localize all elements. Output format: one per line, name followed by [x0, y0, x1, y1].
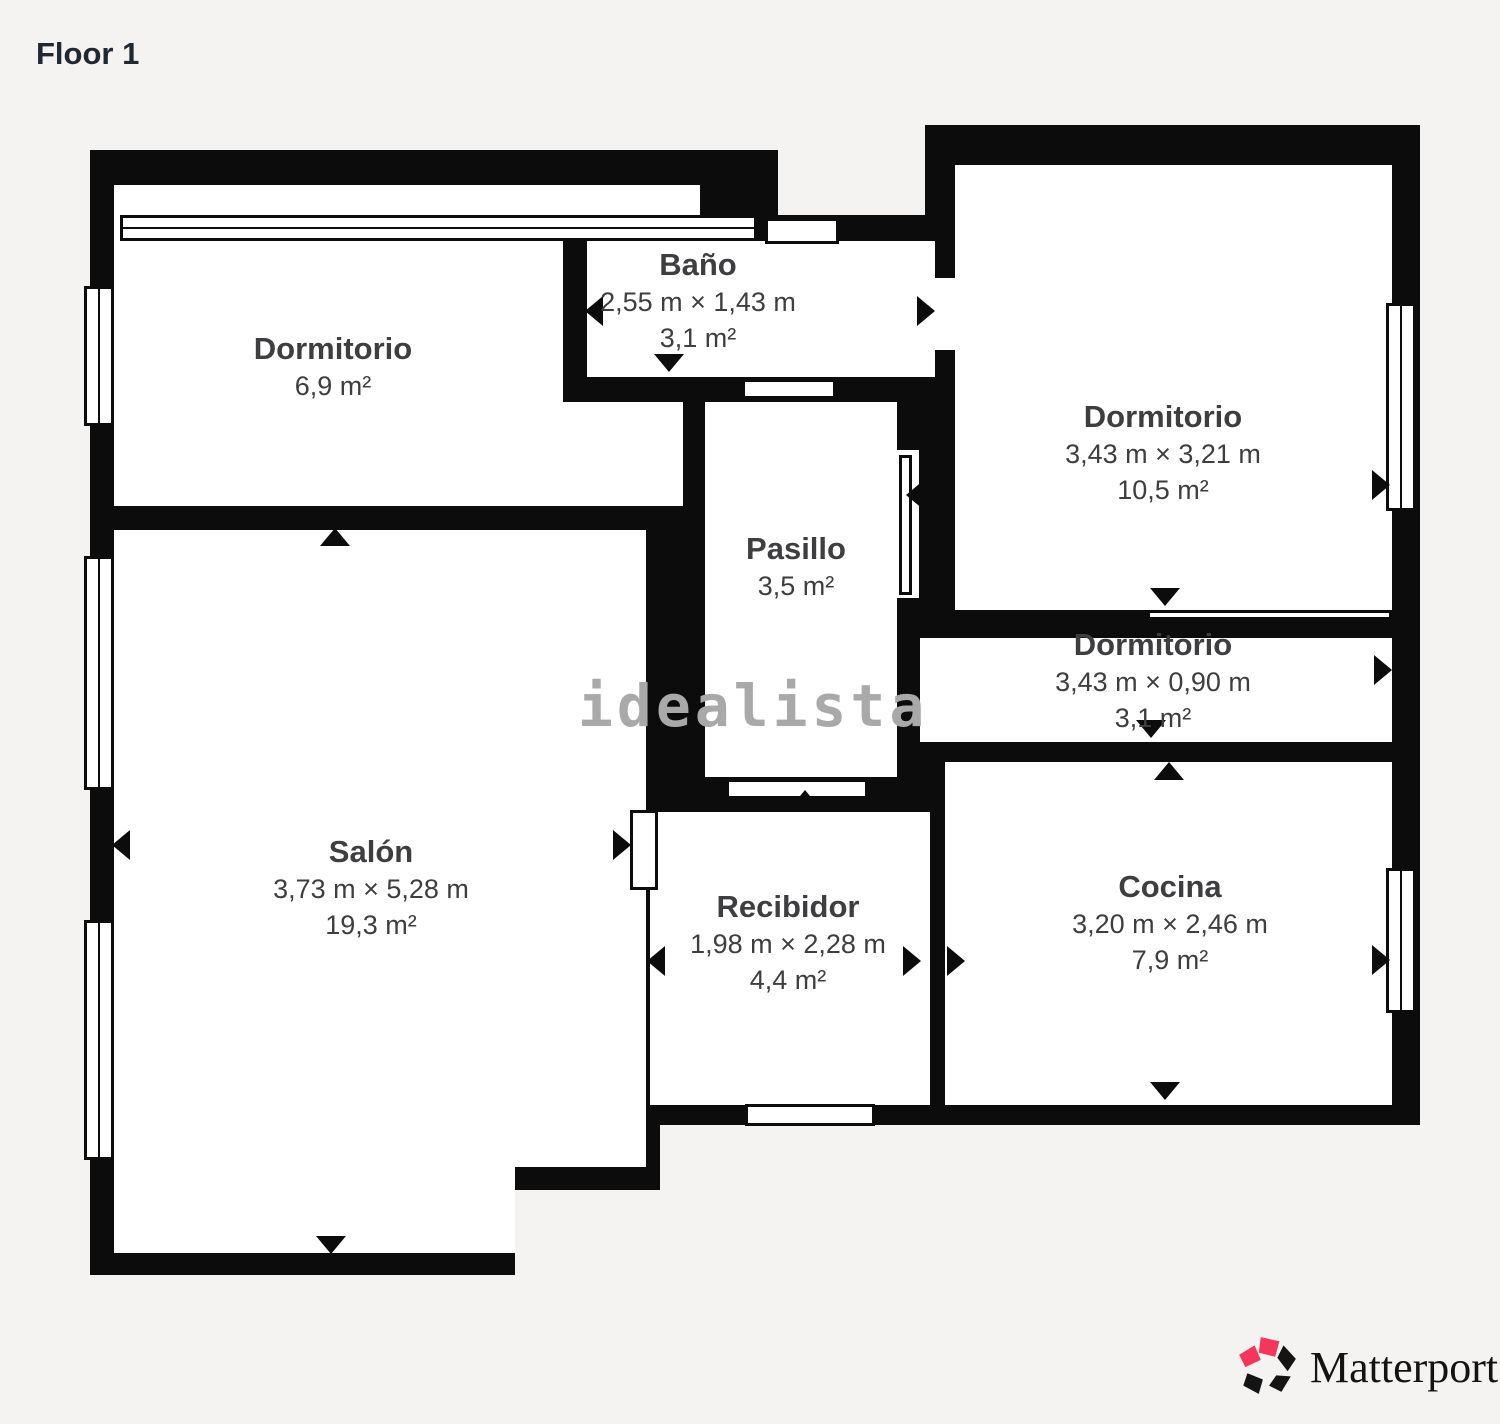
room-label-dormitorio-middle: Dormitorio 3,43 m × 0,90 m 3,1 m²	[1055, 626, 1251, 736]
room-name: Baño	[600, 246, 796, 284]
matterport-pinwheel-icon	[1234, 1332, 1300, 1403]
room-area: 3,1 m²	[600, 320, 796, 356]
room-area: 4,4 m²	[690, 962, 886, 998]
room-label-dormitorio-top-left: Dormitorio 6,9 m²	[254, 330, 412, 404]
window-cocina	[1386, 868, 1416, 1013]
room-label-dormitorio-top-right: Dormitorio 3,43 m × 3,21 m 10,5 m²	[1065, 398, 1261, 508]
window-dormitorio-top-right	[1386, 303, 1416, 511]
room-area: 3,1 m²	[1055, 700, 1251, 736]
entrance-door-threshold	[745, 1104, 875, 1126]
window-salon-upper	[84, 556, 114, 790]
door-arrow-cocina-left	[947, 946, 965, 976]
door-arrow-bano-right	[917, 296, 935, 326]
room-floor-dormitorio-top-right	[955, 165, 1392, 610]
idealista-watermark: idealista	[578, 672, 928, 740]
room-floor-dormitorio-top-left	[563, 402, 683, 506]
room-label-bano: Baño 2,55 m × 1,43 m 3,1 m²	[600, 246, 796, 356]
door-threshold-vestibule	[765, 218, 839, 244]
room-area: 6,9 m²	[254, 368, 412, 404]
door-arrow-salon-top	[320, 528, 350, 546]
room-name: Salón	[273, 833, 469, 871]
room-name: Pasillo	[746, 530, 846, 568]
door-arrow-salon-bottom	[316, 1236, 346, 1254]
window-dormitorio-top-left	[84, 286, 114, 426]
closet-band-dormitorio-middle	[1147, 610, 1392, 620]
room-dimensions: 1,98 m × 2,28 m	[690, 926, 886, 962]
matterport-logo: Matterport	[1234, 1332, 1498, 1403]
room-area: 3,5 m²	[746, 568, 846, 604]
floor-title: Floor 1	[36, 36, 139, 72]
door-arrow-dormitorio-tr-right	[1372, 470, 1390, 500]
room-name: Recibidor	[690, 888, 886, 926]
room-dimensions: 3,43 m × 0,90 m	[1055, 664, 1251, 700]
room-dimensions: 3,73 m × 5,28 m	[273, 871, 469, 907]
door-arrow-recibidor-right	[903, 946, 921, 976]
door-arrow-bano-bottom	[654, 354, 684, 372]
room-name: Dormitorio	[1065, 398, 1261, 436]
room-label-recibidor: Recibidor 1,98 m × 2,28 m 4,4 m²	[690, 888, 886, 998]
door-arrow-cocina-top	[1154, 762, 1184, 780]
room-name: Dormitorio	[1055, 626, 1251, 664]
room-floor-dormitorio-top-left	[114, 185, 700, 215]
room-area: 19,3 m²	[273, 907, 469, 943]
room-label-salon: Salón 3,73 m × 5,28 m 19,3 m²	[273, 833, 469, 943]
room-name: Cocina	[1072, 868, 1268, 906]
closet-band	[120, 215, 757, 241]
door-leaf-pasillo	[899, 455, 912, 595]
door-arrow-dormitorio-tr-bottom	[1150, 588, 1180, 606]
room-dimensions: 3,20 m × 2,46 m	[1072, 906, 1268, 942]
door-arrow-recibidor-top	[790, 790, 820, 808]
door-arrow-dormitorio-mid-right	[1374, 655, 1392, 685]
door-opening-dormitorio-top-right	[935, 278, 957, 350]
door-arrow-cocina-bottom	[1150, 1082, 1180, 1100]
door-threshold-salon-recibidor	[630, 810, 658, 890]
door-arrow-salon-left	[112, 830, 130, 860]
matterport-logo-text: Matterport	[1310, 1342, 1498, 1393]
door-arrow-recibidor-left	[647, 946, 665, 976]
room-label-pasillo: Pasillo 3,5 m²	[746, 530, 846, 604]
floorplan-canvas: Floor 1	[0, 0, 1500, 1424]
door-arrow-salon-recibidor	[613, 830, 631, 860]
room-area: 10,5 m²	[1065, 472, 1261, 508]
exterior-notch	[515, 1190, 660, 1275]
room-dimensions: 2,55 m × 1,43 m	[600, 284, 796, 320]
door-threshold-bano	[742, 379, 836, 399]
door-arrow-pasillo-right	[906, 480, 924, 510]
room-area: 7,9 m²	[1072, 942, 1268, 978]
room-label-cocina: Cocina 3,20 m × 2,46 m 7,9 m²	[1072, 868, 1268, 978]
room-name: Dormitorio	[254, 330, 412, 368]
window-salon-lower	[84, 920, 114, 1160]
door-arrow-dormitorio-tr-top	[1146, 146, 1176, 164]
door-arrow-cocina-right	[1372, 945, 1390, 975]
room-dimensions: 3,43 m × 3,21 m	[1065, 436, 1261, 472]
exterior-notch	[778, 125, 925, 215]
